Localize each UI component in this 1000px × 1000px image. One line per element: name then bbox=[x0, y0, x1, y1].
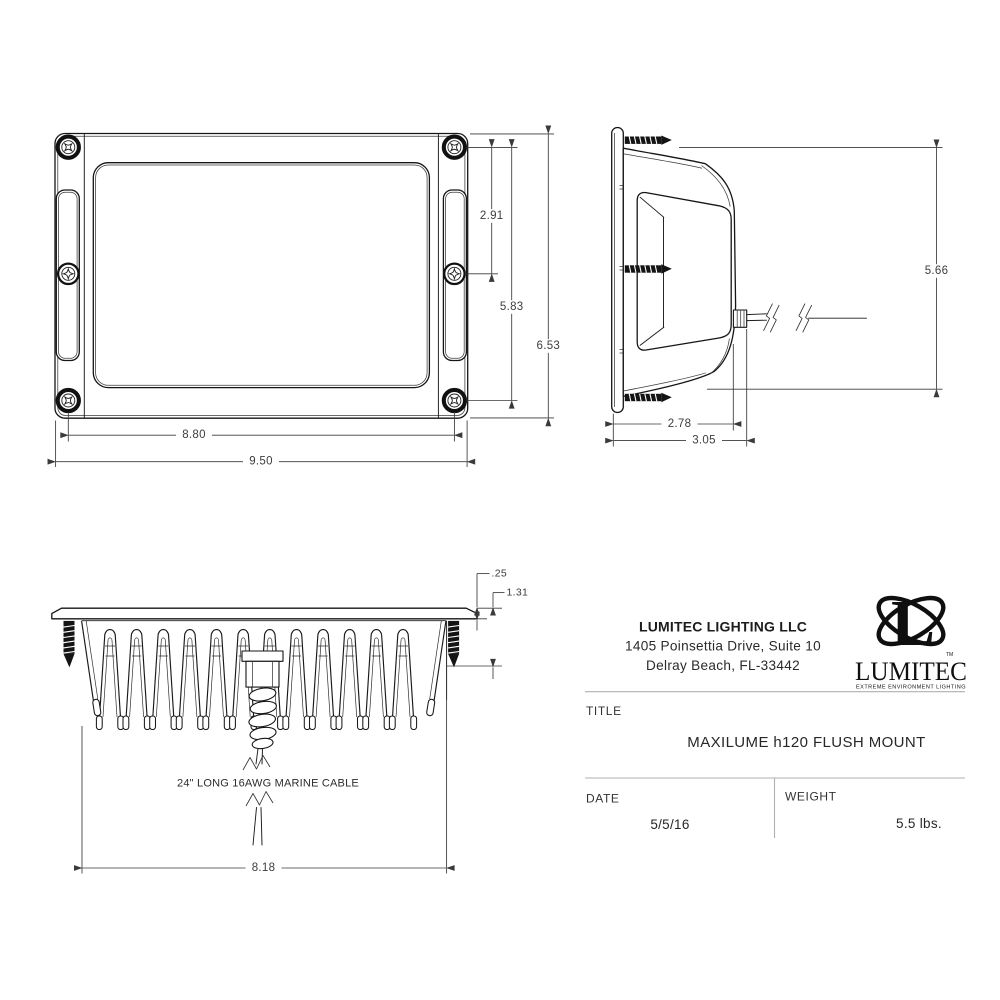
heatsink-side-wall-right bbox=[426, 621, 446, 716]
cable-strain-relief bbox=[242, 651, 283, 845]
cable-gland bbox=[733, 310, 746, 327]
cable-note-label: 24" LONG 16AWG MARINE CABLE bbox=[177, 778, 359, 790]
technical-drawing-canvas: 2.91 5.83 6.53 8.80 9.50 bbox=[0, 0, 1000, 1000]
heatsink-fin bbox=[310, 630, 337, 730]
weight-value: 5.5 lbs. bbox=[896, 816, 942, 831]
heatsink-fin bbox=[283, 630, 310, 730]
heatsink-fin bbox=[176, 630, 203, 730]
wire-break-icon bbox=[764, 304, 780, 333]
dim-9-50: 9.50 bbox=[56, 421, 468, 469]
drawing-title: MAXILUME h120 FLUSH MOUNT bbox=[687, 734, 925, 751]
strain-relief-coil bbox=[248, 712, 276, 728]
company-address-line1: 1405 Poinsettia Drive, Suite 10 bbox=[625, 639, 821, 654]
mounting-screw-icon bbox=[448, 621, 459, 668]
cable-wires-upper bbox=[256, 749, 263, 765]
dimension-label: 9.50 bbox=[249, 456, 273, 468]
strain-relief-coil bbox=[248, 686, 277, 702]
wire-break-icon bbox=[246, 792, 273, 807]
cable-boss-body bbox=[246, 661, 279, 687]
cable-wires bbox=[747, 314, 767, 321]
cable-wires-lower bbox=[253, 808, 262, 846]
screw-head-icon bbox=[58, 137, 79, 158]
extension-line bbox=[477, 608, 502, 619]
dim-0-25: .25 bbox=[477, 568, 507, 631]
dimension-label: 8.18 bbox=[252, 862, 276, 874]
dimension-label: 8.80 bbox=[182, 429, 206, 441]
dim-6-53: 6.53 bbox=[470, 134, 566, 418]
rear-flange bbox=[52, 608, 477, 619]
logo-monogram: L bbox=[891, 587, 935, 660]
dimension-label: 1.31 bbox=[507, 587, 529, 599]
logo-emblem-icon: L bbox=[872, 587, 951, 660]
heatsink-side-wall-left bbox=[82, 621, 102, 716]
dimension-label: 6.53 bbox=[537, 340, 561, 352]
date-label: DATE bbox=[586, 792, 620, 806]
heatsink-fin bbox=[336, 630, 363, 730]
date-value: 5/5/16 bbox=[650, 817, 689, 832]
weight-label: WEIGHT bbox=[785, 790, 837, 804]
logo-tagline: EXTREME ENVIRONMENT LIGHTING bbox=[856, 685, 966, 691]
cable-boss-top bbox=[242, 651, 283, 661]
screw-head-icon bbox=[58, 390, 79, 411]
heatsink-fin bbox=[363, 630, 390, 730]
side-view: 5.66 2.78 3.05 bbox=[612, 128, 954, 448]
company-name: LUMITEC LIGHTING LLC bbox=[639, 619, 807, 635]
screw-head-icon bbox=[444, 264, 464, 284]
dimension-label: 3.05 bbox=[692, 435, 716, 447]
screw-head-icon bbox=[444, 390, 465, 411]
company-address-line2: Delray Beach, FL-33442 bbox=[646, 658, 800, 673]
title-label: TITLE bbox=[586, 704, 622, 718]
dimension-label: 5.83 bbox=[500, 301, 524, 313]
drawing-sheet: 2.91 5.83 6.53 8.80 9.50 bbox=[0, 0, 1000, 1000]
screw-head-icon bbox=[444, 137, 465, 158]
screw-head-icon bbox=[58, 264, 78, 284]
heatsink-fin bbox=[123, 630, 150, 730]
mounting-screw-icon bbox=[625, 393, 672, 402]
dimension-label: 2.78 bbox=[668, 418, 692, 430]
mounting-screw-icon bbox=[625, 136, 672, 145]
front-view: 2.91 5.83 6.53 8.80 9.50 bbox=[55, 134, 566, 469]
logo-wordmark: LUMITEC bbox=[855, 657, 967, 686]
dimension-label: 5.66 bbox=[925, 265, 949, 277]
lumitec-logo: L TM LUMITEC EXTREME ENVIRONMENT LIGHTIN… bbox=[855, 587, 967, 691]
dimension-label: .25 bbox=[492, 568, 508, 580]
dimension-label: 2.91 bbox=[480, 210, 504, 222]
dim-2-91: 2.91 bbox=[467, 148, 518, 274]
front-lens bbox=[93, 163, 429, 388]
heatsink-fin bbox=[150, 630, 177, 730]
heatsink-fin bbox=[203, 630, 230, 730]
heatsink-fin bbox=[389, 630, 416, 730]
rear-view: 24" LONG 16AWG MARINE CABLE .25 1.31 8.1… bbox=[52, 568, 528, 875]
mounting-screw-icon bbox=[64, 621, 75, 668]
title-block: LUMITEC LIGHTING LLC 1405 Poinsettia Dri… bbox=[585, 587, 967, 838]
strain-relief-coil bbox=[249, 700, 277, 716]
